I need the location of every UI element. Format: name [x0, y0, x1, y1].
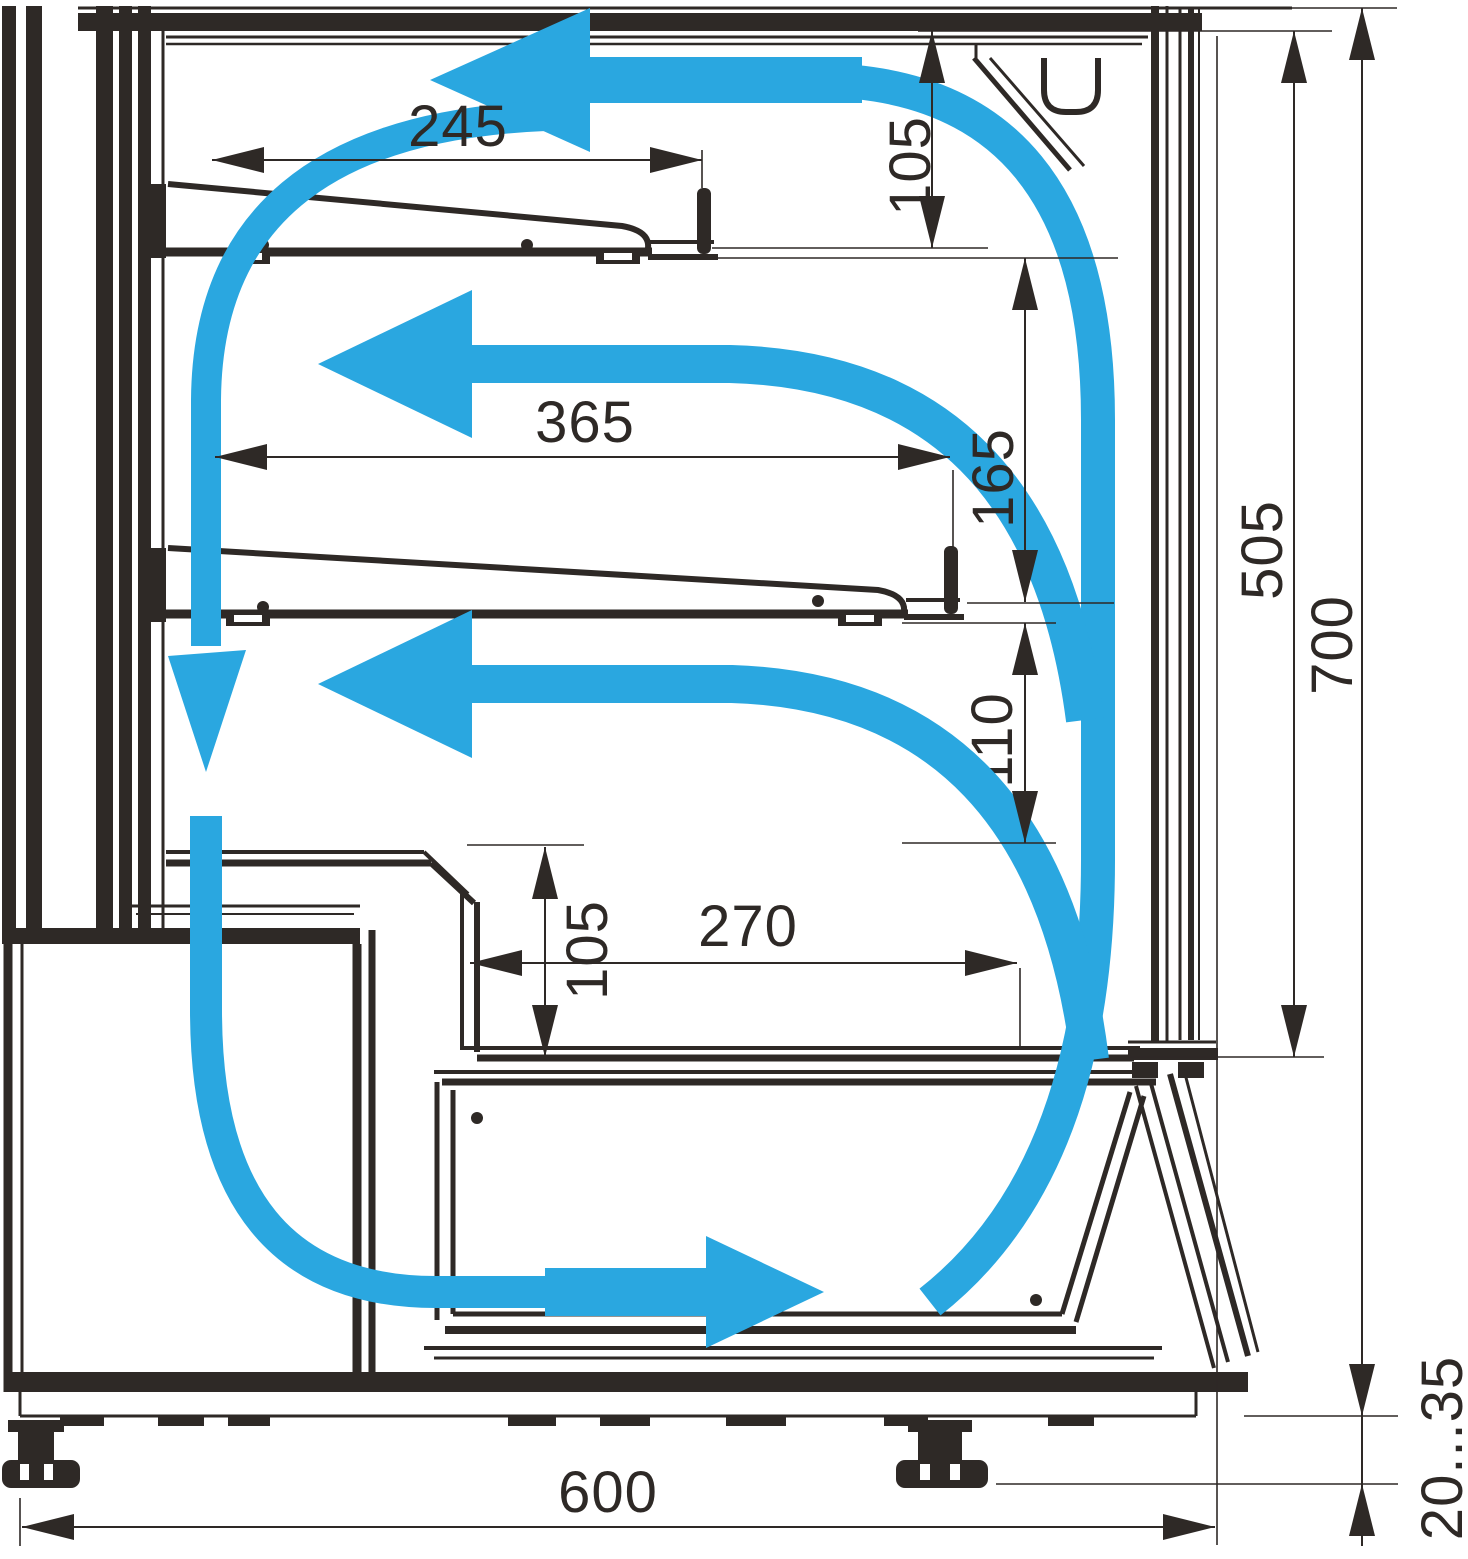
- dim-105-low-label: 105: [555, 900, 620, 1000]
- airflow-down-arrow-head: [168, 650, 246, 772]
- airflow-bottom-duct: [206, 816, 560, 1292]
- middle-shelf: [150, 546, 964, 626]
- airflow-mid-arrow-head: [318, 290, 472, 438]
- dim-270-label: 270: [698, 894, 798, 959]
- dim-505-label: 505: [1230, 500, 1295, 600]
- front-glass: [1155, 6, 1199, 1042]
- case-back-wall: [2, 6, 163, 936]
- price-tag-pin-middle: [944, 546, 958, 614]
- light-housing-hook: [1044, 58, 1098, 112]
- dim-365-label: 365: [535, 390, 635, 455]
- dimension-labels: 245 105 365 165 105 270 505 700 600 20..…: [408, 94, 1468, 1540]
- step-and-machine-compartment: [2, 852, 477, 1392]
- dim-600-label: 600: [558, 1460, 658, 1525]
- price-tag-pin-upper: [697, 188, 711, 254]
- adjustable-foot-left: [2, 1420, 80, 1488]
- adjustable-foot-right: [896, 1420, 988, 1488]
- dim-2035-label: 20...35: [1410, 1356, 1468, 1540]
- dim-105-top-label: 105: [878, 116, 943, 216]
- dim-700-label: 700: [1300, 595, 1365, 695]
- lower-deck: [434, 1048, 1156, 1082]
- technical-drawing: 110: [0, 0, 1468, 1559]
- dim-165-label: 165: [961, 428, 1026, 528]
- front-sill-and-bumper: [1128, 1042, 1258, 1368]
- airflow-low-arrow-head: [318, 610, 472, 758]
- dim-245-label: 245: [408, 94, 508, 159]
- airflow: [168, 8, 1098, 1348]
